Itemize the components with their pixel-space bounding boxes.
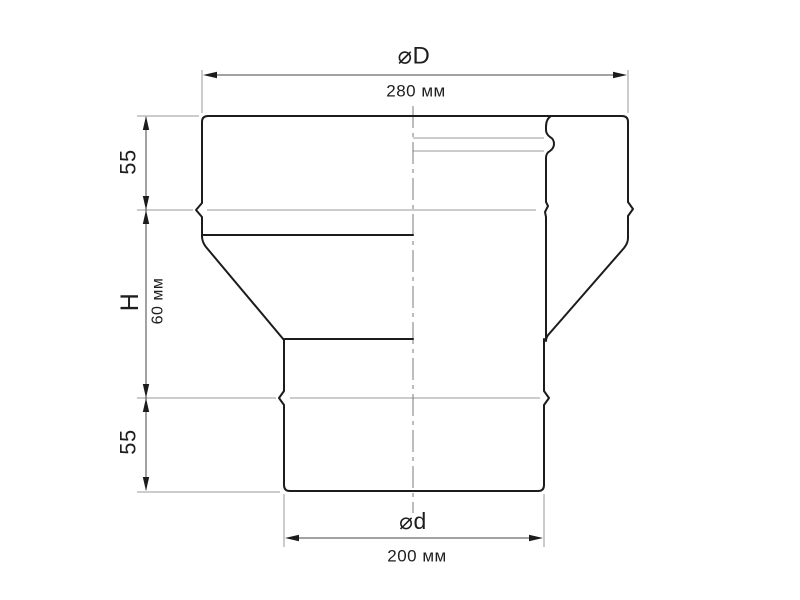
- lower-height-value: 55: [116, 429, 141, 454]
- arrow-up-icon: [143, 116, 149, 130]
- arrow-down-icon: [143, 196, 149, 210]
- arrow-right-icon: [613, 72, 627, 78]
- upper-height-value: 55: [116, 149, 141, 174]
- middle-height-symbol: H: [116, 293, 144, 312]
- reducer-technical-drawing: ⌀D 280 мм ⌀d 200 мм 55 H 60 мм 55: [0, 0, 800, 600]
- arrow-up-icon: [143, 398, 149, 412]
- arrow-down-icon: [143, 477, 149, 491]
- bottom-diameter-symbol: ⌀d: [399, 508, 427, 534]
- bottom-diameter-value: 200 мм: [387, 547, 446, 566]
- top-diameter-symbol: ⌀D: [398, 43, 431, 70]
- middle-height-value: 60 мм: [150, 278, 167, 325]
- cone-left-edge: [202, 236, 284, 340]
- lower-pipe-outline: [279, 339, 549, 491]
- drawing-canvas: ⌀D 280 мм ⌀d 200 мм 55 H 60 мм 55: [0, 0, 800, 600]
- dimension-labels: ⌀D 280 мм ⌀d 200 мм 55 H 60 мм 55: [116, 43, 447, 566]
- top-diameter-value: 280 мм: [386, 82, 445, 101]
- cone-right-edge: [546, 238, 628, 341]
- arrow-up-icon: [143, 210, 149, 224]
- arrow-left-icon: [285, 535, 299, 541]
- arrow-right-icon: [529, 535, 543, 541]
- upper-collar-outline: [196, 116, 633, 238]
- arrow-left-icon: [203, 72, 217, 78]
- body-outline: [196, 116, 633, 491]
- inner-pipe-crimp-edge: [545, 116, 554, 339]
- arrow-down-icon: [143, 384, 149, 398]
